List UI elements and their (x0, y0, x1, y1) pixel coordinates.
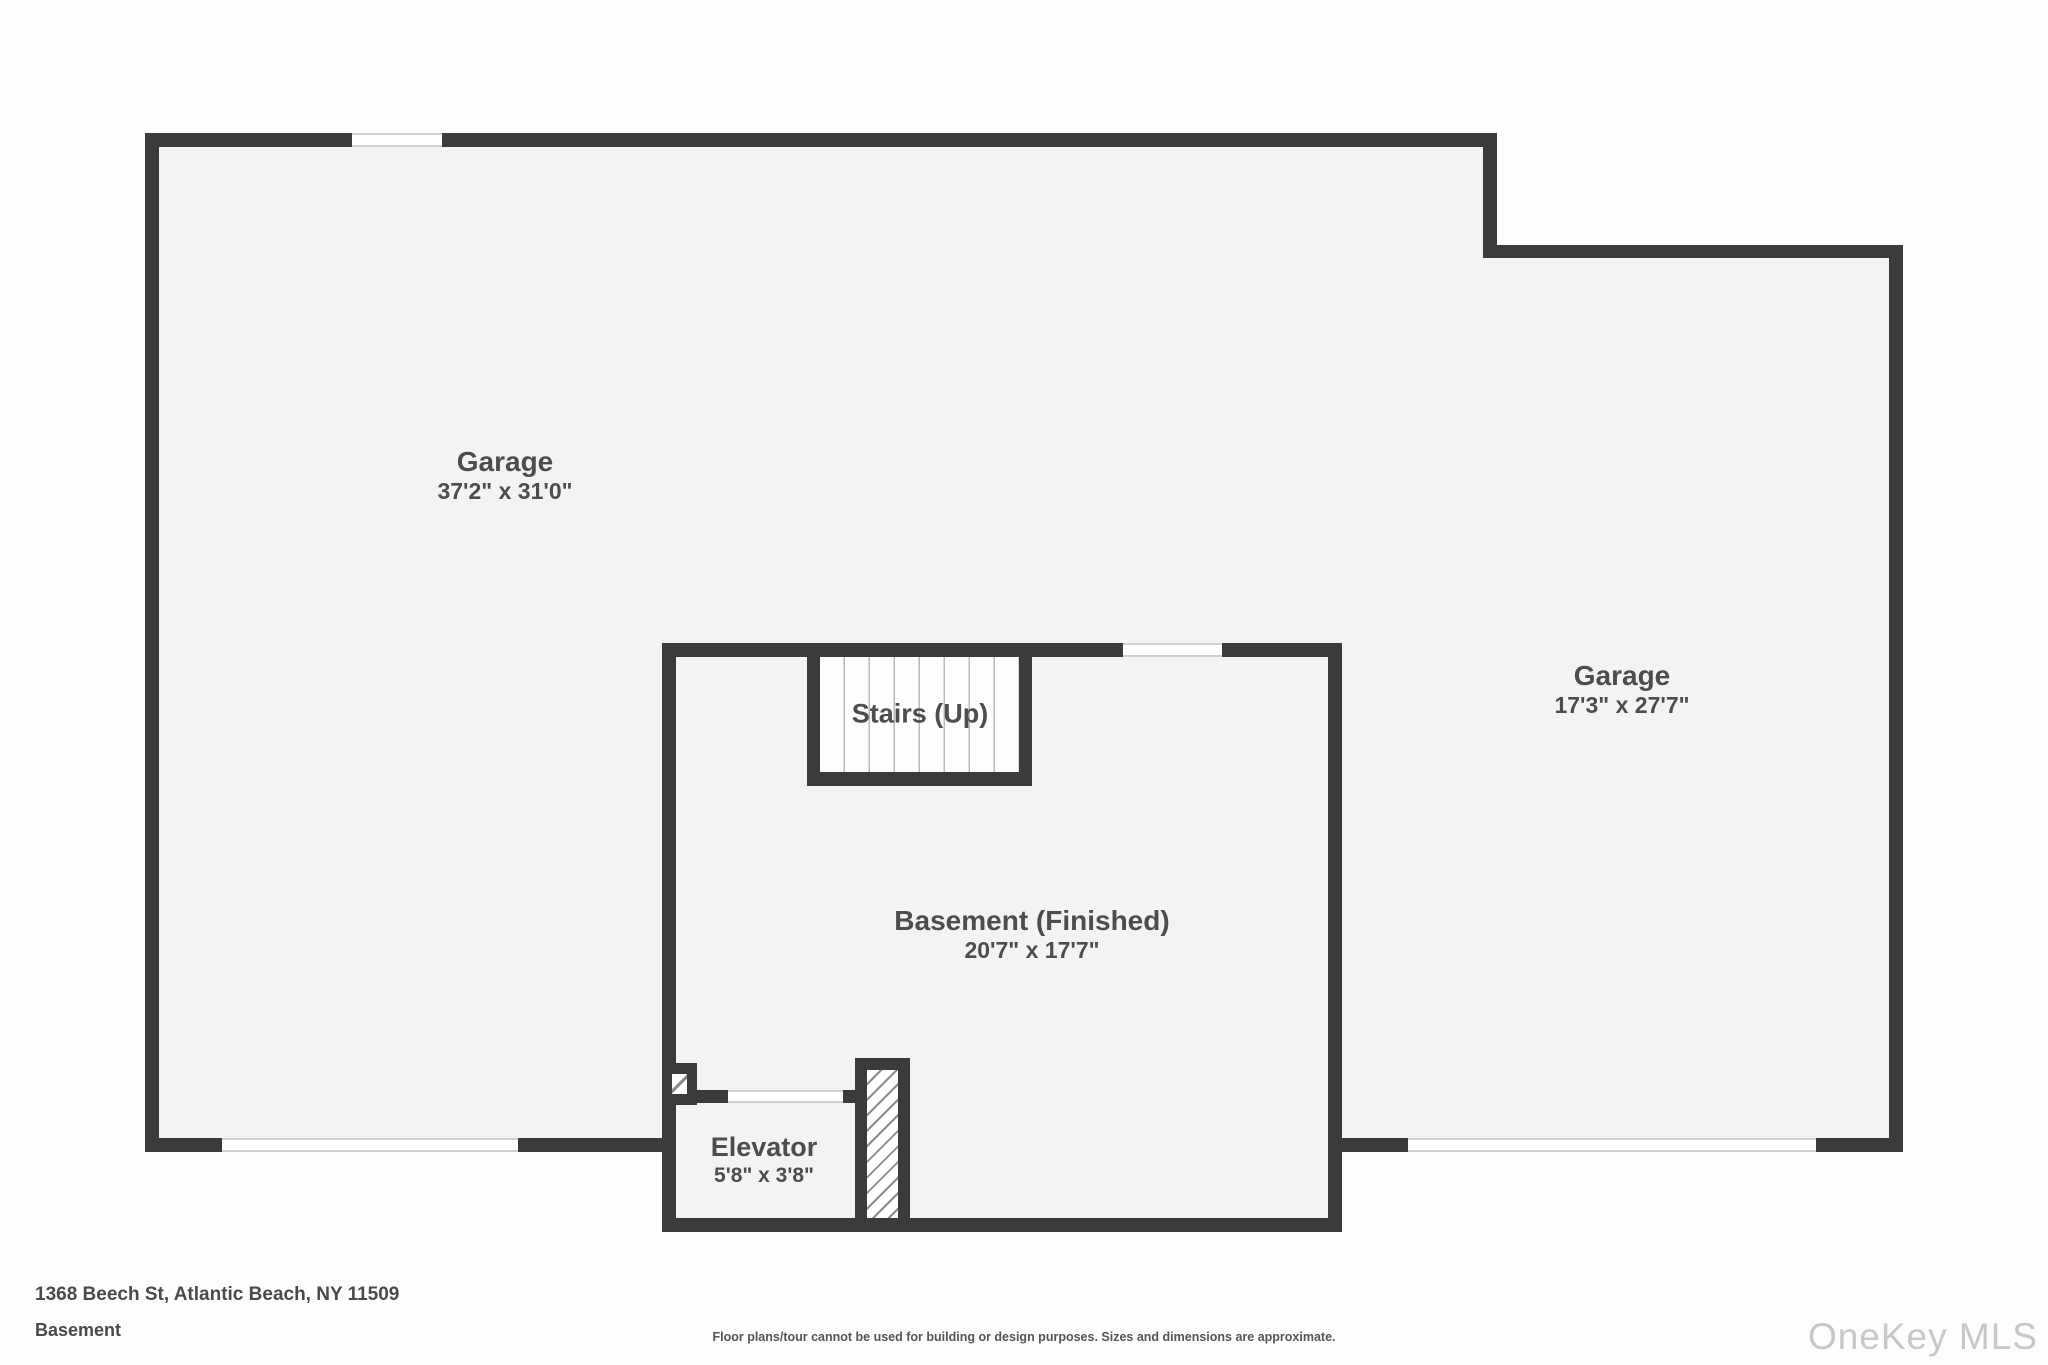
basement-wall-bottom (662, 1218, 1342, 1232)
room-label-basement: Basement (Finished) 20'7" x 17'7" (894, 905, 1169, 965)
onekey-mls-watermark: OneKey MLS (1808, 1316, 2038, 1358)
exterior-wall-left (145, 133, 159, 1152)
exterior-wall-step (1483, 133, 1497, 258)
floorplan-canvas: Garage 37'2" x 31'0" Garage 17'3" x 27'7… (0, 0, 2048, 1365)
room-label-elevator: Elevator 5'8" x 3'8" (711, 1132, 818, 1188)
window-bottom-left-garage (222, 1138, 518, 1152)
exterior-wall-right (1889, 245, 1903, 1152)
elevator-shaft-hatch (867, 1070, 898, 1218)
exterior-wall-top-left-section (145, 133, 1497, 147)
room-label-stairs: Stairs (Up) (852, 698, 989, 729)
basement-wall-left (662, 643, 676, 1232)
window-bottom-right-garage (1408, 1138, 1816, 1152)
room-name: Stairs (Up) (852, 698, 989, 729)
basement-wall-top (662, 643, 1342, 657)
window-top-wall (352, 133, 442, 147)
room-dims: 37'2" x 31'0" (437, 478, 572, 506)
stairs-wall-left (807, 650, 820, 786)
room-dims: 5'8" x 3'8" (711, 1163, 818, 1188)
room-label-garage-right: Garage 17'3" x 27'7" (1554, 660, 1689, 720)
stairs-wall-bottom (807, 772, 1032, 786)
room-dims: 17'3" x 27'7" (1554, 692, 1689, 720)
room-name: Garage (1554, 660, 1689, 692)
exterior-wall-top-right-section (1483, 245, 1903, 258)
room-name: Garage (437, 446, 572, 478)
property-address: 1368 Beech St, Atlantic Beach, NY 11509 (35, 1284, 399, 1306)
basement-wall-right (1328, 643, 1342, 1232)
window-basement-top (1123, 643, 1222, 657)
floor-right-garage (1490, 252, 1896, 1152)
room-dims: 20'7" x 17'7" (894, 937, 1169, 965)
stairs-wall-right (1019, 650, 1032, 786)
room-name: Elevator (711, 1132, 818, 1163)
room-name: Basement (Finished) (894, 905, 1169, 937)
elevator-door-opening (728, 1090, 843, 1103)
room-label-garage-left: Garage 37'2" x 31'0" (437, 446, 572, 506)
disclaimer-text: Floor plans/tour cannot be used for buil… (0, 1330, 2048, 1344)
corner-column-hatch (672, 1074, 687, 1094)
